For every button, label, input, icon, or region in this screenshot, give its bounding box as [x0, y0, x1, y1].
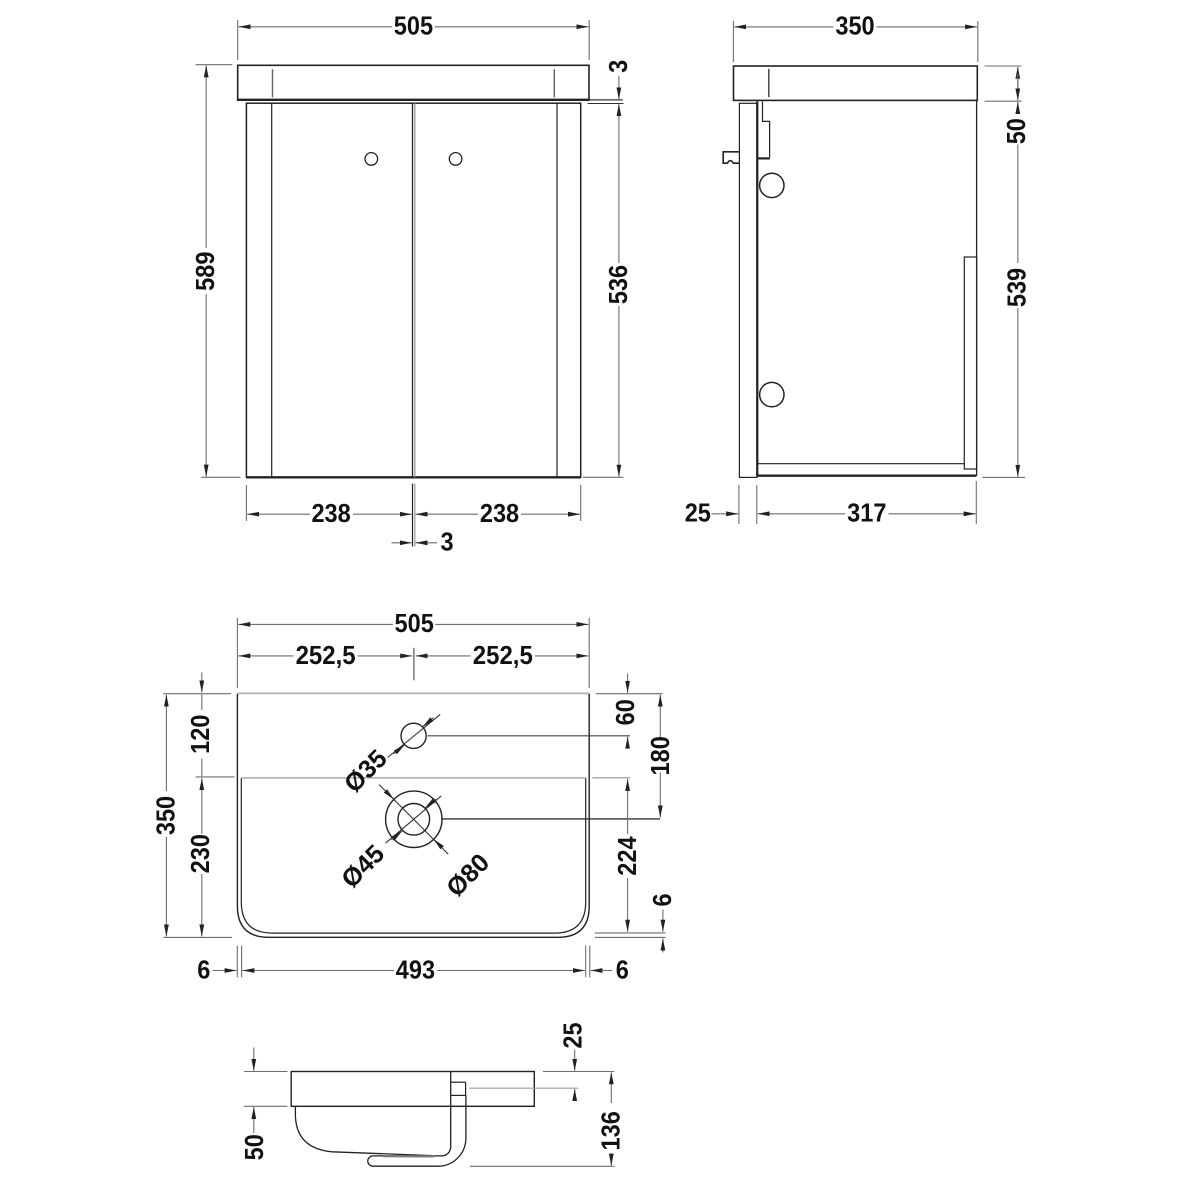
svg-text:224: 224 [614, 836, 642, 876]
svg-text:180: 180 [647, 736, 675, 775]
svg-text:505: 505 [394, 13, 433, 41]
svg-text:3: 3 [605, 60, 633, 73]
svg-text:238: 238 [311, 500, 350, 528]
svg-text:50: 50 [241, 1134, 269, 1160]
svg-text:539: 539 [1003, 268, 1031, 307]
svg-text:50: 50 [1003, 118, 1031, 144]
svg-text:25: 25 [685, 499, 711, 527]
svg-text:350: 350 [835, 13, 874, 41]
svg-text:60: 60 [612, 699, 640, 725]
svg-text:317: 317 [847, 499, 886, 527]
svg-text:3: 3 [440, 529, 453, 557]
svg-text:350: 350 [152, 796, 180, 835]
svg-text:6: 6 [197, 956, 210, 984]
svg-text:589: 589 [192, 252, 220, 291]
svg-text:505: 505 [395, 610, 434, 638]
svg-text:252,5: 252,5 [296, 642, 356, 670]
svg-text:252,5: 252,5 [473, 642, 533, 670]
svg-text:6: 6 [616, 956, 629, 984]
svg-text:25: 25 [560, 1022, 588, 1048]
svg-text:493: 493 [396, 956, 435, 984]
svg-text:238: 238 [480, 500, 519, 528]
svg-text:230: 230 [187, 834, 215, 873]
svg-text:6: 6 [649, 893, 677, 906]
svg-text:136: 136 [597, 1111, 625, 1150]
svg-text:536: 536 [605, 265, 633, 304]
svg-text:120: 120 [187, 715, 215, 754]
